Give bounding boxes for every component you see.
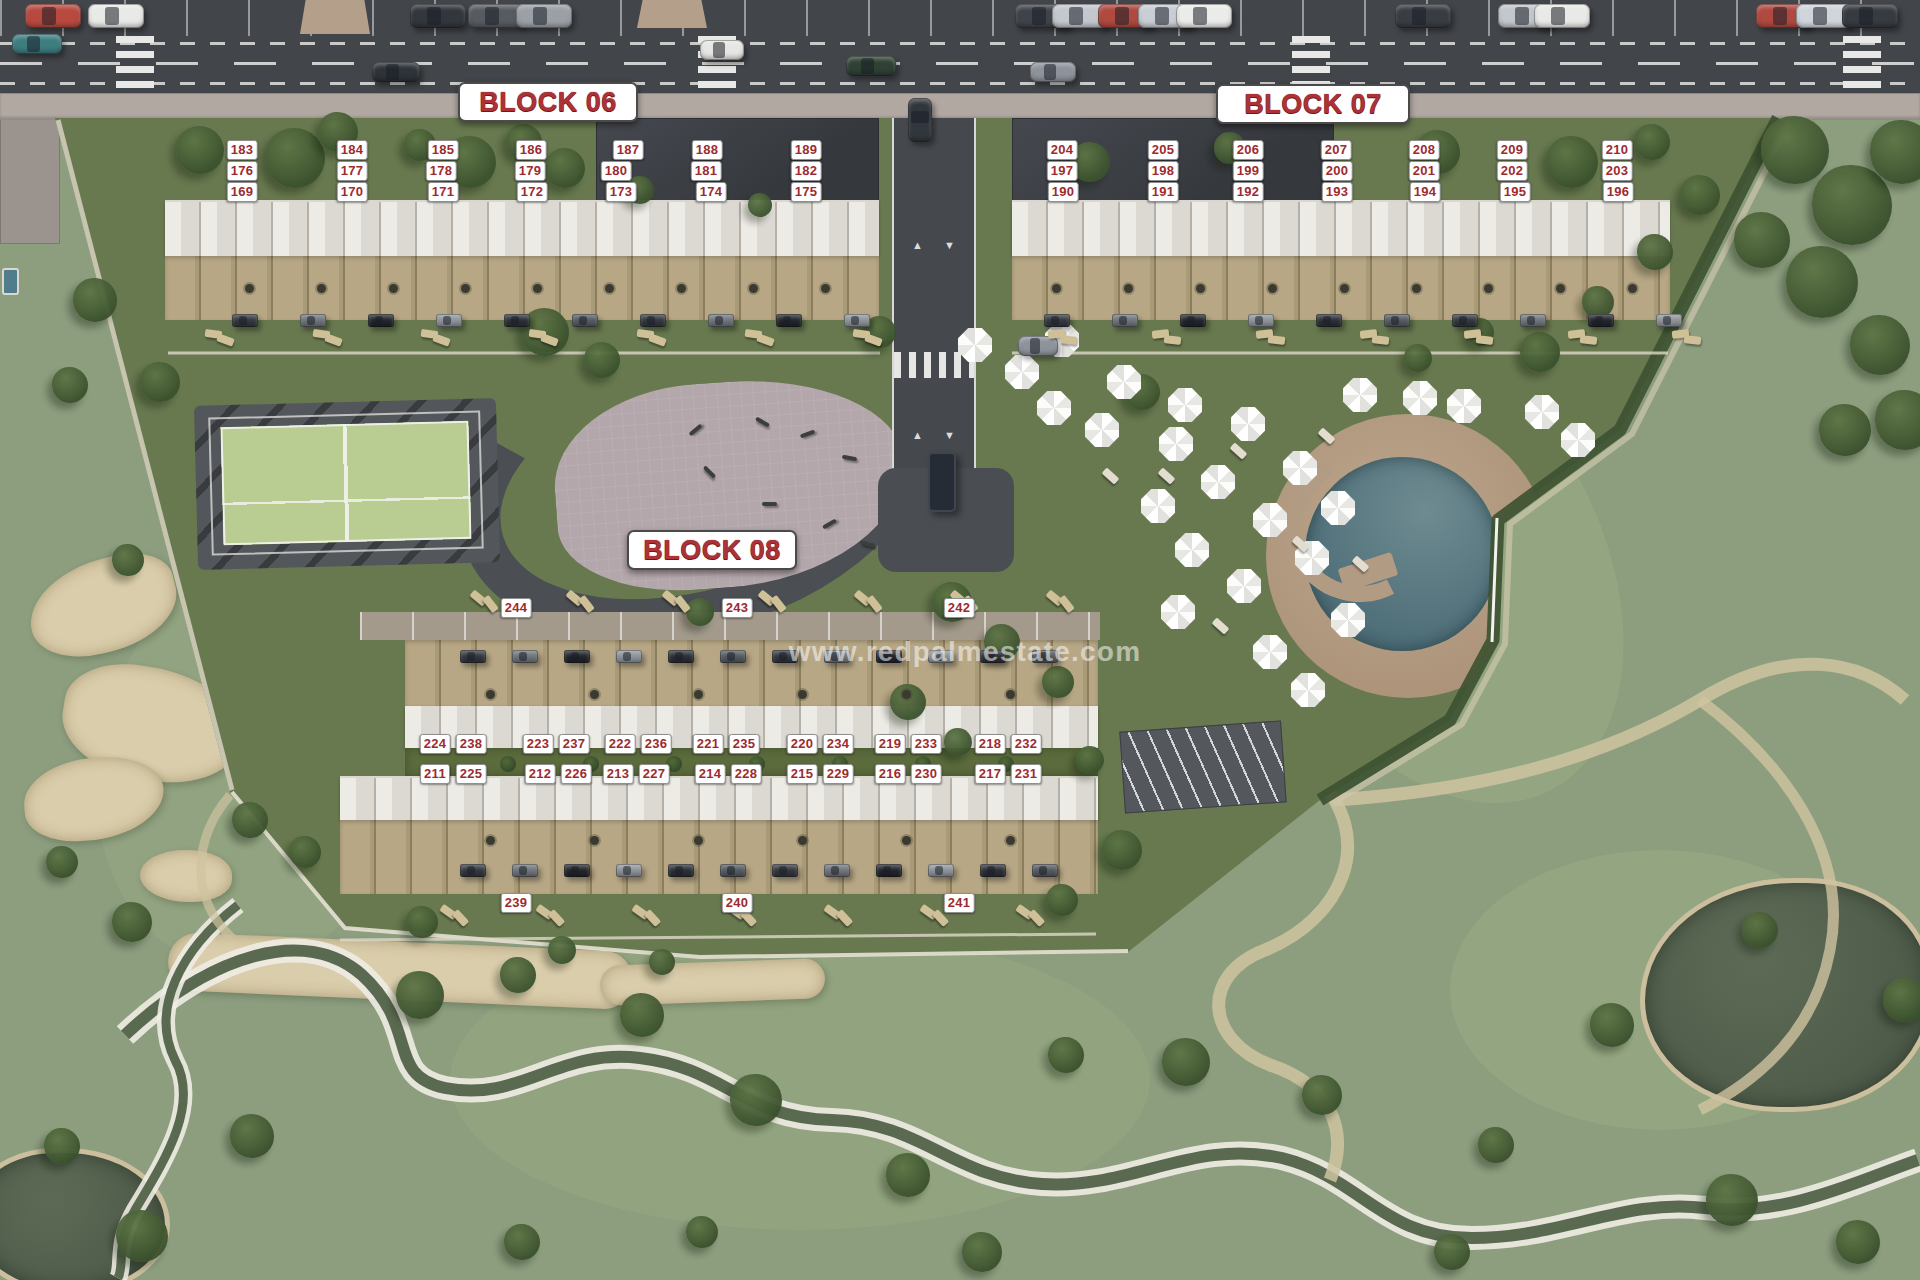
table-spot bbox=[1124, 284, 1133, 293]
table-spot bbox=[1628, 284, 1637, 293]
car bbox=[564, 650, 590, 663]
table-spot bbox=[1340, 284, 1349, 293]
car bbox=[372, 62, 420, 82]
car bbox=[846, 56, 896, 76]
unit-badge: 210 bbox=[1602, 140, 1633, 160]
table-spot bbox=[1052, 284, 1061, 293]
car bbox=[720, 864, 746, 877]
unit-badge: 192 bbox=[1233, 182, 1264, 202]
unit-badge: 175 bbox=[791, 182, 822, 202]
car bbox=[460, 650, 486, 663]
unit-badge: 227 bbox=[639, 764, 670, 784]
tree bbox=[1634, 124, 1670, 160]
table-spot bbox=[245, 284, 254, 293]
table-spot bbox=[798, 690, 807, 699]
unit-badge: 189 bbox=[791, 140, 822, 160]
tree bbox=[545, 148, 585, 188]
car bbox=[1452, 314, 1478, 327]
tree bbox=[886, 1153, 930, 1197]
car bbox=[700, 40, 744, 60]
tree bbox=[944, 728, 972, 756]
car bbox=[512, 650, 538, 663]
block-06-title: BLOCK 06 bbox=[458, 82, 638, 122]
tree bbox=[748, 193, 772, 217]
unit-badge: 233 bbox=[911, 734, 942, 754]
unit-badge: 208 bbox=[1409, 140, 1440, 160]
tree bbox=[1162, 1038, 1210, 1086]
tree bbox=[1883, 978, 1920, 1022]
unit-badge: 181 bbox=[691, 161, 722, 181]
table-spot bbox=[677, 284, 686, 293]
tree bbox=[686, 598, 714, 626]
table-spot bbox=[1196, 284, 1205, 293]
car bbox=[1384, 314, 1410, 327]
tree bbox=[620, 993, 664, 1037]
unit-badge: 172 bbox=[517, 182, 548, 202]
sun-lounger bbox=[1580, 335, 1598, 345]
car bbox=[12, 34, 62, 54]
unit-badge: 231 bbox=[1011, 764, 1042, 784]
unit-badge: 228 bbox=[731, 764, 762, 784]
tree bbox=[44, 1128, 80, 1164]
tree bbox=[504, 1224, 540, 1260]
table-spot bbox=[389, 284, 398, 293]
unit-badge: 169 bbox=[227, 182, 258, 202]
tree bbox=[116, 1210, 168, 1262]
unit-badge: 239 bbox=[501, 893, 532, 913]
car bbox=[668, 650, 694, 663]
unit-badge: 200 bbox=[1322, 161, 1353, 181]
tree bbox=[1404, 344, 1432, 372]
tree bbox=[289, 836, 321, 868]
unit-badge: 178 bbox=[426, 161, 457, 181]
car bbox=[1248, 314, 1274, 327]
unit-badge: 225 bbox=[456, 764, 487, 784]
unit-badge: 215 bbox=[787, 764, 818, 784]
unit-badge: 244 bbox=[501, 598, 532, 618]
unit-badge: 187 bbox=[613, 140, 644, 160]
unit-badge: 174 bbox=[696, 182, 727, 202]
unit-badge: 211 bbox=[420, 764, 450, 784]
car bbox=[504, 314, 530, 327]
car bbox=[564, 864, 590, 877]
car bbox=[232, 314, 258, 327]
unit-badge: 191 bbox=[1148, 182, 1179, 202]
block-07-title: BLOCK 07 bbox=[1216, 84, 1410, 124]
tree bbox=[73, 278, 117, 322]
unit-badge: 221 bbox=[693, 734, 724, 754]
tree bbox=[1046, 884, 1078, 916]
car bbox=[708, 314, 734, 327]
unit-badge: 223 bbox=[523, 734, 554, 754]
car bbox=[824, 864, 850, 877]
unit-badge: 173 bbox=[606, 182, 637, 202]
car bbox=[572, 314, 598, 327]
car bbox=[88, 4, 144, 28]
unit-badge: 185 bbox=[428, 140, 459, 160]
tree bbox=[1850, 315, 1910, 375]
car bbox=[410, 4, 466, 28]
tree bbox=[1076, 746, 1104, 774]
car bbox=[516, 4, 572, 28]
car bbox=[844, 314, 870, 327]
unit-badge: 197 bbox=[1047, 161, 1078, 181]
tree bbox=[1706, 1174, 1758, 1226]
car bbox=[1534, 4, 1590, 28]
unit-badge: 198 bbox=[1148, 161, 1179, 181]
block-08-title: BLOCK 08 bbox=[627, 530, 797, 570]
car bbox=[908, 98, 932, 142]
tree bbox=[46, 846, 78, 878]
watermark: www.redpalmestate.com bbox=[789, 636, 1142, 668]
tree bbox=[1546, 136, 1598, 188]
car bbox=[1316, 314, 1342, 327]
tree bbox=[112, 544, 144, 576]
unit-badge: 179 bbox=[515, 161, 546, 181]
tree bbox=[265, 128, 325, 188]
unit-badge: 196 bbox=[1603, 182, 1634, 202]
car bbox=[776, 314, 802, 327]
tree bbox=[1048, 1037, 1084, 1073]
unit-badge: 195 bbox=[1500, 182, 1531, 202]
unit-badge: 214 bbox=[695, 764, 726, 784]
car bbox=[1030, 62, 1076, 82]
unit-badge: 216 bbox=[875, 764, 906, 784]
tree bbox=[1520, 332, 1560, 372]
tree bbox=[1478, 1127, 1514, 1163]
car bbox=[1395, 4, 1451, 28]
site-plan: ▲ ▼ ▲ ▼ www.redpalmestate.com BLOCK 0618… bbox=[0, 0, 1920, 1280]
table-spot bbox=[694, 690, 703, 699]
unit-badge: 230 bbox=[911, 764, 942, 784]
tree bbox=[1734, 212, 1790, 268]
tree bbox=[1302, 1075, 1342, 1115]
tree bbox=[230, 1114, 274, 1158]
tree bbox=[1761, 116, 1829, 184]
car bbox=[616, 650, 642, 663]
table-spot bbox=[902, 836, 911, 845]
tree bbox=[1786, 246, 1858, 318]
unit-badge: 176 bbox=[227, 161, 258, 181]
courtyard-shrub bbox=[500, 756, 516, 772]
table-spot bbox=[1556, 284, 1565, 293]
table-spot bbox=[461, 284, 470, 293]
unit-badge: 194 bbox=[1410, 182, 1441, 202]
unit-badge: 170 bbox=[337, 182, 368, 202]
tree bbox=[112, 902, 152, 942]
tree bbox=[686, 1216, 718, 1248]
table-spot bbox=[317, 284, 326, 293]
unit-badge: 180 bbox=[601, 161, 632, 181]
table-spot bbox=[590, 836, 599, 845]
table-spot bbox=[605, 284, 614, 293]
tree bbox=[396, 971, 444, 1019]
table-spot bbox=[533, 284, 542, 293]
unit-badge: 232 bbox=[1011, 734, 1042, 754]
tree bbox=[52, 367, 88, 403]
table-spot bbox=[1268, 284, 1277, 293]
unit-badge: 183 bbox=[227, 140, 258, 160]
tree bbox=[1742, 912, 1778, 948]
unit-badge: 171 bbox=[428, 182, 459, 202]
car bbox=[772, 864, 798, 877]
unit-badge: 226 bbox=[561, 764, 592, 784]
car bbox=[720, 650, 746, 663]
unit-badge: 184 bbox=[337, 140, 368, 160]
table-spot bbox=[694, 836, 703, 845]
unit-badge: 241 bbox=[944, 893, 975, 913]
gym-equipment bbox=[762, 502, 777, 506]
unit-badge: 243 bbox=[722, 598, 753, 618]
car bbox=[460, 864, 486, 877]
tree bbox=[406, 906, 438, 938]
tree bbox=[500, 957, 536, 993]
tree bbox=[176, 126, 224, 174]
table-spot bbox=[798, 836, 807, 845]
sun-lounger bbox=[1060, 335, 1078, 345]
car bbox=[876, 864, 902, 877]
tree bbox=[649, 949, 675, 975]
car bbox=[928, 864, 954, 877]
unit-badge: 186 bbox=[516, 140, 547, 160]
unit-badge: 219 bbox=[875, 734, 906, 754]
tree bbox=[1819, 404, 1871, 456]
tree bbox=[1434, 1234, 1470, 1270]
car bbox=[1018, 336, 1058, 356]
car bbox=[1656, 314, 1682, 327]
sun-lounger bbox=[1372, 335, 1390, 345]
unit-badge: 205 bbox=[1148, 140, 1179, 160]
table-spot bbox=[902, 690, 911, 699]
table-spot bbox=[486, 836, 495, 845]
tree bbox=[1836, 1220, 1880, 1264]
tree bbox=[1042, 666, 1074, 698]
table-spot bbox=[1006, 690, 1015, 699]
table-spot bbox=[1484, 284, 1493, 293]
unit-badge: 212 bbox=[525, 764, 556, 784]
car bbox=[368, 314, 394, 327]
unit-badge: 190 bbox=[1048, 182, 1079, 202]
unit-badge: 234 bbox=[823, 734, 854, 754]
unit-badge: 229 bbox=[823, 764, 854, 784]
unit-badge: 206 bbox=[1233, 140, 1264, 160]
car bbox=[1520, 314, 1546, 327]
unit-badge: 177 bbox=[337, 161, 368, 181]
unit-badge: 209 bbox=[1497, 140, 1528, 160]
table-spot bbox=[821, 284, 830, 293]
car bbox=[1588, 314, 1614, 327]
tree bbox=[1590, 1003, 1634, 1047]
sun-lounger bbox=[1476, 335, 1494, 345]
unit-badge: 182 bbox=[791, 161, 822, 181]
unit-badge: 220 bbox=[787, 734, 818, 754]
car bbox=[300, 314, 326, 327]
tree bbox=[140, 362, 180, 402]
sun-lounger bbox=[1684, 335, 1702, 345]
unit-badge: 217 bbox=[975, 764, 1006, 784]
car bbox=[512, 864, 538, 877]
sun-lounger bbox=[1268, 335, 1286, 345]
car bbox=[1032, 864, 1058, 877]
tree bbox=[1680, 175, 1720, 215]
tree bbox=[1637, 234, 1673, 270]
unit-badge: 222 bbox=[605, 734, 636, 754]
car bbox=[1176, 4, 1232, 28]
car bbox=[640, 314, 666, 327]
car bbox=[668, 864, 694, 877]
unit-badge: 193 bbox=[1322, 182, 1353, 202]
table-spot bbox=[590, 690, 599, 699]
table-spot bbox=[1006, 836, 1015, 845]
unit-badge: 188 bbox=[692, 140, 723, 160]
sun-lounger bbox=[1164, 335, 1182, 345]
car bbox=[1842, 4, 1898, 28]
car bbox=[980, 864, 1006, 877]
unit-badge: 213 bbox=[603, 764, 634, 784]
unit-badge: 199 bbox=[1233, 161, 1264, 181]
tree bbox=[1102, 830, 1142, 870]
tree bbox=[730, 1074, 782, 1126]
car bbox=[1044, 314, 1070, 327]
tree bbox=[584, 342, 620, 378]
unit-badge: 237 bbox=[559, 734, 590, 754]
car bbox=[1180, 314, 1206, 327]
unit-badge: 203 bbox=[1602, 161, 1633, 181]
unit-badge: 240 bbox=[722, 893, 753, 913]
table-spot bbox=[749, 284, 758, 293]
tree bbox=[232, 802, 268, 838]
unit-badge: 235 bbox=[729, 734, 760, 754]
tree bbox=[1812, 165, 1892, 245]
unit-badge: 242 bbox=[944, 598, 975, 618]
unit-badge: 218 bbox=[975, 734, 1006, 754]
tree bbox=[962, 1232, 1002, 1272]
car bbox=[1112, 314, 1138, 327]
table-spot bbox=[1412, 284, 1421, 293]
unit-badge: 238 bbox=[456, 734, 487, 754]
car bbox=[25, 4, 81, 28]
unit-badge: 207 bbox=[1321, 140, 1352, 160]
unit-badge: 204 bbox=[1047, 140, 1078, 160]
table-spot bbox=[486, 690, 495, 699]
unit-badge: 224 bbox=[420, 734, 451, 754]
unit-badge: 202 bbox=[1497, 161, 1528, 181]
car bbox=[436, 314, 462, 327]
tree bbox=[548, 936, 576, 964]
car bbox=[616, 864, 642, 877]
unit-badge: 201 bbox=[1409, 161, 1440, 181]
unit-badge: 236 bbox=[641, 734, 672, 754]
